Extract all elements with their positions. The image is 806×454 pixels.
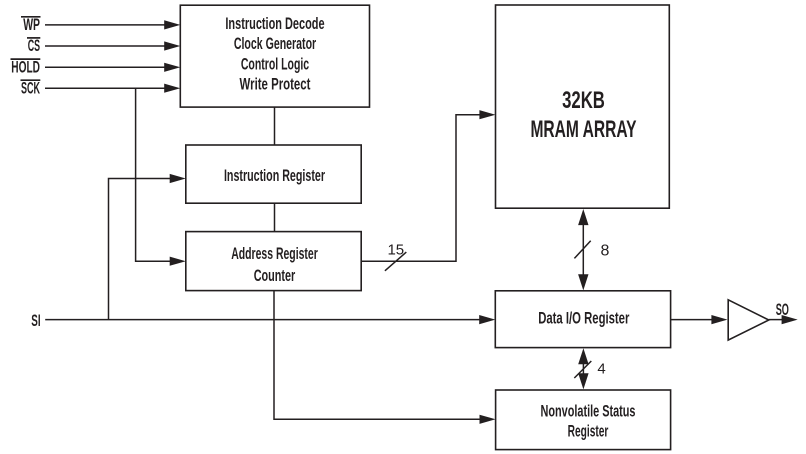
svg-text:Register: Register <box>568 421 609 440</box>
svg-text:SI: SI <box>31 311 40 330</box>
svg-text:Nonvolatile Status: Nonvolatile Status <box>541 402 636 421</box>
svg-text:Clock Generator: Clock Generator <box>234 34 317 53</box>
svg-text:HOLD: HOLD <box>11 57 40 76</box>
svg-text:Address Register: Address Register <box>231 244 318 263</box>
svg-text:4: 4 <box>597 360 605 377</box>
svg-text:CS: CS <box>28 36 40 55</box>
svg-text:Data I/O Register: Data I/O Register <box>538 309 629 328</box>
svg-text:SCK: SCK <box>21 79 40 98</box>
svg-text:MRAM ARRAY: MRAM ARRAY <box>530 116 636 143</box>
svg-text:Write Protect: Write Protect <box>240 75 311 94</box>
svg-text:Counter: Counter <box>254 266 296 285</box>
svg-text:15: 15 <box>387 241 404 258</box>
svg-text:Instruction Register: Instruction Register <box>224 166 325 185</box>
svg-text:32KB: 32KB <box>562 87 605 114</box>
svg-text:WP: WP <box>23 15 40 34</box>
svg-text:8: 8 <box>601 243 610 260</box>
svg-text:Instruction Decode: Instruction Decode <box>225 14 324 33</box>
svg-text:Control Logic: Control Logic <box>241 54 309 73</box>
